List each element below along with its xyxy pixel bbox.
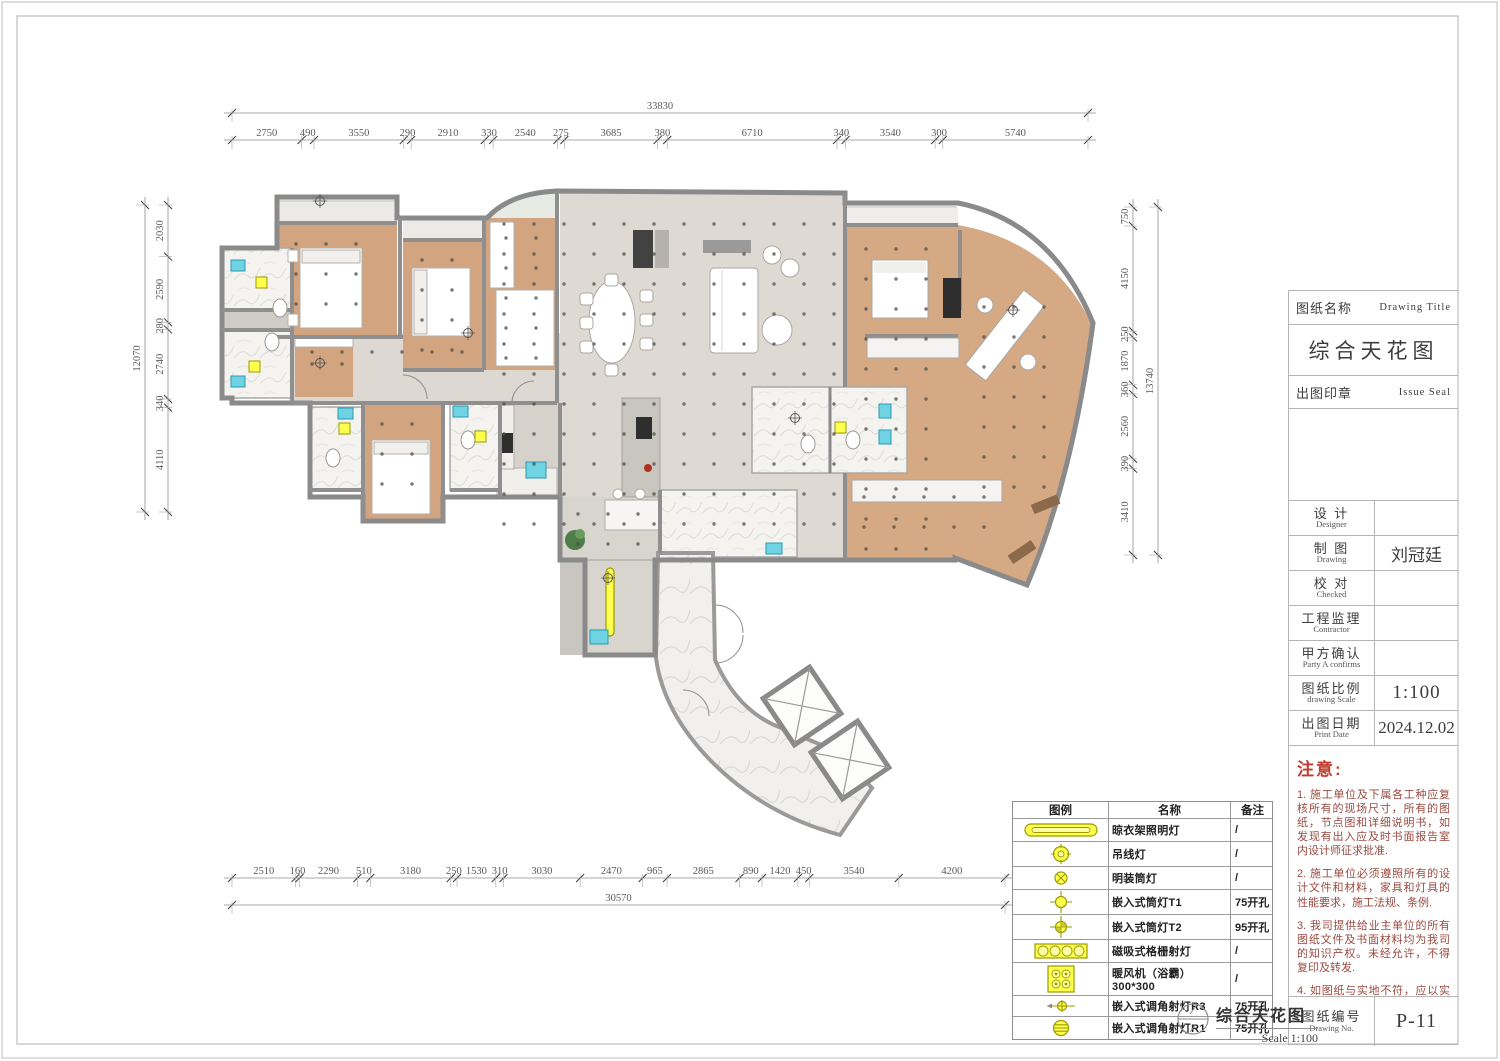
dimension-label: 2560	[1120, 416, 1131, 437]
legend-item-note: /	[1231, 819, 1274, 841]
dimension-label: 2470	[601, 866, 622, 877]
legend-item-name: 嵌入式筒灯T2	[1109, 915, 1231, 939]
dimension-label: 1870	[1120, 351, 1131, 372]
legend-item-note: 75开孔	[1231, 890, 1274, 914]
dimension-label: 330	[481, 128, 497, 139]
dimension-label: 3540	[844, 866, 865, 877]
date-value: 2024.12.02	[1375, 711, 1458, 745]
contractor-row: 工程监理Contractor	[1289, 606, 1458, 641]
legend-item-name: 嵌入式筒灯T1	[1109, 890, 1231, 914]
legend-item-note: /	[1231, 842, 1274, 866]
dimension-label: 5740	[1005, 128, 1026, 139]
drawing-sheet: 2750490355029029103302540275368538067103…	[0, 0, 1500, 1061]
dimension-label: 2030	[155, 220, 166, 241]
dimension-label: 300	[931, 128, 947, 139]
drawing-title-label-cn: 图纸名称	[1296, 298, 1352, 317]
checker-value	[1375, 571, 1458, 605]
drawing-no-value: P-11	[1375, 997, 1458, 1046]
legend-item-note: /	[1231, 867, 1274, 889]
bathroom-3	[310, 407, 363, 490]
dimension-label: 890	[743, 866, 759, 877]
legend-header-cell: 备注	[1231, 802, 1274, 818]
dimension-label: 2740	[155, 354, 166, 375]
drafter-label: 制 图	[1314, 542, 1350, 556]
scale-label: 图纸比例	[1301, 682, 1361, 696]
party-a-row: 甲方确认Party A confirms	[1289, 641, 1458, 676]
bedroom-2-furniture	[412, 268, 470, 336]
designer-row: 设 计Designer	[1289, 501, 1458, 536]
recessed-downlight-t2-icon	[1013, 915, 1109, 939]
dimension-label: 12070	[132, 345, 143, 371]
issue-seal-label-cn: 出图印章	[1296, 383, 1352, 402]
issue-seal-row: 出图印章 Issue Seal	[1289, 376, 1458, 409]
dimension-label: 380	[655, 128, 671, 139]
dimension-label: 3550	[348, 128, 369, 139]
party-a-label: 甲方确认	[1301, 647, 1361, 661]
dimension-chain-v168: 2030259028027403404110	[155, 197, 172, 520]
party-a-value	[1375, 641, 1458, 675]
scale-value: 1:100	[1375, 676, 1458, 710]
dimension-label: 2865	[693, 866, 714, 877]
dimension-label: 4110	[155, 450, 166, 471]
designer-label: 设 计	[1314, 507, 1350, 521]
adjustable-spot-r1-icon	[1013, 1017, 1109, 1039]
legend-header-row: 图例名称备注	[1013, 802, 1272, 819]
dimension-label: 310	[492, 866, 508, 877]
magnetic-grille-light-icon	[1013, 940, 1109, 962]
legend-item-name: 吊线灯	[1109, 842, 1231, 866]
surface-downlight-icon	[1013, 867, 1109, 889]
sheet-title: 综合天花图	[1289, 325, 1458, 376]
legend-header-cell: 名称	[1109, 802, 1231, 818]
bathroom-heater-icon	[1013, 963, 1109, 995]
dimension-label: 340	[833, 128, 849, 139]
dimension-label: 4150	[1120, 268, 1131, 289]
dimension-label: 1420	[769, 866, 790, 877]
notes-list: 1. 施工单位及下属各工种应复核所有的现场尺寸，所有的图纸，节点图和详细说明书，…	[1297, 788, 1450, 996]
dimension-label: 6710	[742, 128, 763, 139]
dimension-label: 2540	[515, 128, 536, 139]
dimension-label: 2590	[155, 279, 166, 300]
drying-rack-light-icon	[1013, 819, 1109, 841]
dimension-chain-h878: 2510160229051031802501530310303024709652…	[224, 866, 1013, 887]
date-label: 出图日期	[1301, 717, 1361, 731]
recessed-downlight-t1-icon	[1013, 890, 1109, 914]
dimension-label: 965	[647, 866, 663, 877]
legend-row: 明装筒灯/	[1013, 867, 1272, 890]
drawing-title-mark-icon	[1176, 1002, 1210, 1036]
dimension-chain-v145: 12070	[132, 197, 149, 520]
legend-item-name: 晾衣架照明灯	[1109, 819, 1231, 841]
dimension-label: 290	[400, 128, 416, 139]
dimension-label: 30570	[605, 893, 631, 904]
checker-row: 校 对Checked	[1289, 571, 1458, 606]
dimension-chain-h905: 30570	[224, 893, 1013, 914]
notes-block: 注意: 1. 施工单位及下属各工种应复核所有的现场尺寸，所有的图纸，节点图和详细…	[1289, 746, 1458, 996]
bedroom-4-furniture	[372, 440, 430, 514]
closet-room	[295, 337, 353, 397]
designer-value	[1375, 501, 1458, 535]
footer-drawing-title: 综合天花图	[1216, 1002, 1318, 1029]
dimension-label: 250	[446, 866, 462, 877]
pendant-light-icon	[1013, 842, 1109, 866]
dimension-label: 340	[155, 395, 166, 411]
legend-row: 嵌入式筒灯T295开孔	[1013, 915, 1272, 940]
dimension-label: 360	[1120, 381, 1131, 397]
dimension-chain-h113: 33830	[224, 101, 1096, 122]
notes-title: 注意:	[1297, 755, 1450, 780]
dimension-label: 3540	[880, 128, 901, 139]
dimension-label: 2750	[256, 128, 277, 139]
note-paragraph: 2. 施工单位必须遵照所有的设计文件和材料，家具和灯具的性能要求，施工法规、条例…	[1297, 867, 1450, 909]
adjustable-spot-r3-icon	[1013, 996, 1109, 1016]
dimension-label: 3180	[400, 866, 421, 877]
legend-item-note: 95开孔	[1231, 915, 1274, 939]
note-paragraph: 1. 施工单位及下属各工种应复核所有的现场尺寸，所有的图纸，节点图和详细说明书，…	[1297, 788, 1450, 858]
dimension-label: 13740	[1145, 368, 1156, 394]
dimension-chain-v1133: 7504150250187036025603903410	[1120, 199, 1137, 563]
footer-scale: Scale 1:100	[1216, 1029, 1318, 1046]
legend-item-note: /	[1231, 963, 1274, 995]
legend-header-cell: 图例	[1013, 802, 1109, 818]
scale-row: 图纸比例drawing Scale 1:100	[1289, 676, 1458, 711]
dimension-label: 2510	[253, 866, 274, 877]
dimension-label: 750	[1120, 209, 1131, 225]
contractor-value	[1375, 606, 1458, 640]
floor-plan: 2750490355029029103302540275368538067103…	[132, 101, 1162, 914]
contractor-label: 工程监理	[1301, 612, 1361, 626]
checker-label: 校 对	[1314, 577, 1350, 591]
legend-row: 吊线灯/	[1013, 842, 1272, 867]
legend-item-note: /	[1231, 940, 1274, 962]
legend-item-name: 暖风机（浴霸）300*300	[1109, 963, 1231, 995]
dimension-label: 3685	[600, 128, 621, 139]
legend-item-name: 磁吸式格栅射灯	[1109, 940, 1231, 962]
note-paragraph: 3. 我司提供给业主单位的所有图纸文件及书面材料均为我司的知识产权。未经允许，不…	[1297, 919, 1450, 975]
dimension-label: 280	[155, 318, 166, 334]
legend-row: 晾衣架照明灯/	[1013, 819, 1272, 842]
dimension-label: 275	[553, 128, 569, 139]
dimension-label: 3030	[531, 866, 552, 877]
floor-plan-canvas: 2750490355029029103302540275368538067103…	[0, 0, 1500, 1061]
footer-drawing-mark: 综合天花图 Scale 1:100	[1176, 1002, 1318, 1046]
dimension-label: 510	[356, 866, 372, 877]
dimension-label: 390	[1120, 456, 1131, 472]
dimension-chain-v1158: 13740	[1145, 199, 1162, 563]
legend-item-name: 明装筒灯	[1109, 867, 1231, 889]
dimension-label: 2910	[437, 128, 458, 139]
date-row: 出图日期Print Date 2024.12.02	[1289, 711, 1458, 746]
dimension-label: 450	[796, 866, 812, 877]
drafter-row: 制 图Drawing 刘冠廷	[1289, 536, 1458, 571]
drafter-value: 刘冠廷	[1375, 536, 1458, 570]
dimension-label: 33830	[647, 101, 673, 112]
dimension-label: 4200	[941, 866, 962, 877]
dimension-label: 2290	[318, 866, 339, 877]
dimension-label: 490	[300, 128, 316, 139]
note-paragraph: 4. 如图纸与实地不符，应以实地尺寸为准作相应调整.	[1297, 984, 1450, 996]
dimension-chain-h140: 2750490355029029103302540275368538067103…	[224, 128, 1096, 149]
legend-row: 暖风机（浴霸）300*300/	[1013, 963, 1272, 996]
drawing-title-row: 图纸名称 Drawing Title	[1289, 291, 1458, 325]
legend-row: 嵌入式筒灯T175开孔	[1013, 890, 1272, 915]
entry-foyer	[560, 560, 655, 655]
dimension-label: 160	[290, 866, 306, 877]
issue-seal-label-en: Issue Seal	[1399, 387, 1451, 398]
dimension-label: 250	[1120, 326, 1131, 342]
title-block: 图纸名称 Drawing Title 综合天花图 出图印章 Issue Seal…	[1288, 290, 1458, 1045]
seal-area	[1289, 409, 1458, 501]
pantry	[660, 490, 797, 557]
drawing-title-label-en: Drawing Title	[1379, 302, 1451, 313]
dimension-label: 1530	[466, 866, 487, 877]
legend-row: 磁吸式格栅射灯/	[1013, 940, 1272, 963]
dimension-label: 3410	[1120, 501, 1131, 522]
